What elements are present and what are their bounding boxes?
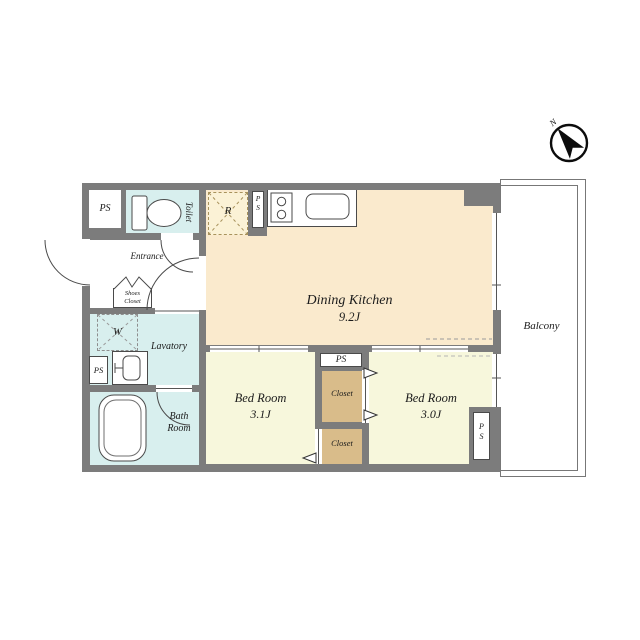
balcony-label: Balcony xyxy=(504,320,579,332)
bedroom1-label: Bed Room xyxy=(206,391,315,405)
closet-upper-label: Closet xyxy=(322,389,362,399)
vanity-basin-icon xyxy=(123,356,140,380)
closet-lower-arrow xyxy=(303,453,316,463)
ps-top-left-label: PS xyxy=(89,190,121,228)
ps-bottom-right-p: P xyxy=(473,422,490,432)
lavatory-label: Lavatory xyxy=(134,341,204,352)
floorplan-canvas: N PS Toilet Entrance Shoes Closet Lavato… xyxy=(0,0,640,640)
sink-icon xyxy=(306,194,349,219)
ps-left-label: PS xyxy=(89,356,108,384)
entrance-label: Entrance xyxy=(107,251,187,261)
ps-kitchen-p: P xyxy=(251,194,265,203)
shoes-closet-label-line2: Closet xyxy=(113,298,152,306)
compass: N xyxy=(543,113,587,161)
ps-bottom-right-label: P S xyxy=(473,422,490,442)
bedroom1-size: 3.1J xyxy=(206,408,315,421)
fridge-label: R xyxy=(208,205,248,217)
dining-kitchen-size: 9.2J xyxy=(206,310,493,324)
bathroom-label-line2: Room xyxy=(154,423,204,435)
front-door-arc xyxy=(45,240,90,285)
closet-upper-arrow-1 xyxy=(364,368,377,378)
toilet-label: Toilet xyxy=(182,190,194,234)
closet-lower-label: Closet xyxy=(322,439,362,449)
washer-label: W xyxy=(97,327,138,339)
shoes-closet-label-line1: Shoes xyxy=(113,290,152,298)
dk-door-arc xyxy=(147,258,199,310)
dining-kitchen-label: Dining Kitchen xyxy=(206,293,493,309)
ps-center-label: PS xyxy=(320,353,362,367)
ps-bottom-right-s: S xyxy=(473,432,490,442)
shoes-closet-folding-icon xyxy=(114,277,151,289)
compass-north-label: N xyxy=(547,116,559,129)
bathroom-label-line1: Bath xyxy=(154,411,204,423)
bathroom-label: Bath Room xyxy=(154,411,204,435)
ps-kitchen-label: P S xyxy=(251,194,265,212)
ps-kitchen-s: S xyxy=(251,203,265,212)
toilet-tank-icon xyxy=(132,196,147,230)
toilet-bowl-icon xyxy=(147,200,181,227)
bedroom2-label: Bed Room xyxy=(369,391,493,405)
shoes-closet-label: Shoes Closet xyxy=(113,290,152,306)
bedroom2-size: 3.0J xyxy=(369,408,493,421)
